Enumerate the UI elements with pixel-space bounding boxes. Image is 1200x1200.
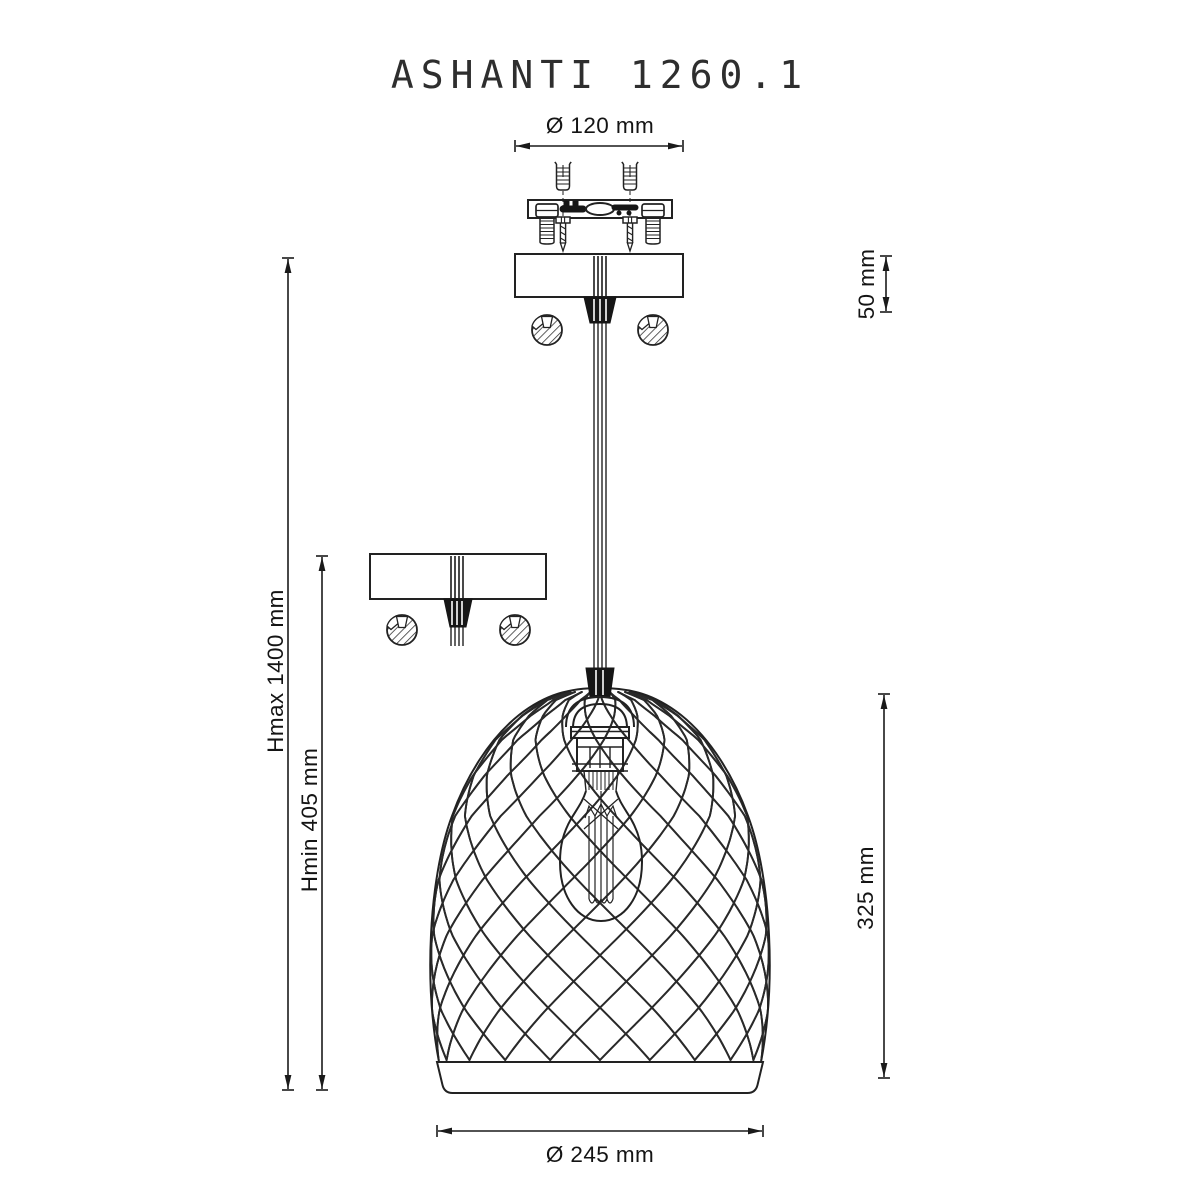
ceiling-bracket-side-drawing (370, 554, 546, 646)
bracket-wires-inner (451, 556, 463, 599)
product-title: ASHANTI 1260.1 (391, 53, 809, 97)
dim-shade-height: 325 mm (853, 694, 890, 1078)
wall-anchor-right (622, 162, 638, 190)
lattice-line (447, 692, 665, 1060)
dim-height-min-label: Hmin 405 mm (297, 748, 322, 892)
bracket-detail (627, 211, 631, 215)
bracket-plate (370, 554, 546, 599)
dome-nut-left (532, 315, 562, 345)
lattice-line (536, 692, 754, 1060)
canopy-body (515, 254, 683, 297)
bracket-slot-right (612, 205, 638, 210)
socket-collar-inner (573, 704, 627, 728)
dim-shade-diameter: Ø 245 mm (437, 1125, 763, 1167)
dim-canopy-diameter: Ø 120 mm (515, 113, 683, 152)
canopy-cord-segment (594, 256, 606, 297)
bulb-filament (584, 791, 618, 903)
socket-and-bulb-drawing (560, 668, 642, 921)
bracket-strain-relief (444, 599, 472, 627)
socket-collar-outer (566, 697, 634, 727)
bracket-detail (617, 211, 621, 215)
ceiling-canopy-drawing (515, 254, 683, 345)
screw-right (623, 217, 637, 251)
dim-height-min: Hmin 405 mm (297, 556, 328, 1090)
dome-nut-left (387, 615, 417, 645)
lattice-line (447, 692, 665, 1060)
dim-shade-diameter-label: Ø 245 mm (546, 1142, 654, 1167)
socket-body-lines (577, 747, 623, 768)
bracket-detail (564, 201, 569, 205)
dim-canopy-height: 50 mm (854, 249, 892, 320)
lattice-line (536, 692, 754, 1060)
dome-nut-right (638, 315, 668, 345)
lamp-dimension-diagram: ASHANTI 1260.1 Ø 120 mm (0, 0, 1200, 1200)
bracket-detail (573, 201, 578, 205)
lattice-line (618, 692, 760, 1060)
dim-height-max: Hmax 1400 mm (263, 258, 294, 1090)
bolt-right (642, 204, 664, 244)
dome-nut-right (500, 615, 530, 645)
dim-canopy-diameter-label: Ø 120 mm (546, 113, 654, 138)
dim-height-max-label: Hmax 1400 mm (263, 589, 288, 753)
technical-drawing-page: ASHANTI 1260.1 Ø 120 mm (0, 0, 1200, 1200)
bracket-center-hole (586, 203, 614, 215)
bolt-left (536, 204, 558, 244)
shade-strain-relief (586, 668, 614, 697)
screw-left (556, 217, 570, 251)
shade-outline (430, 688, 769, 1062)
dim-shade-height-label: 325 mm (853, 846, 878, 930)
mounting-hardware-drawing (528, 162, 672, 251)
wall-anchor-left (555, 162, 571, 190)
shade-bottom-rim (437, 1062, 763, 1093)
dim-canopy-height-label: 50 mm (854, 249, 879, 320)
bulb-neck-hatch (589, 772, 613, 790)
bracket-slot-left (560, 206, 586, 212)
